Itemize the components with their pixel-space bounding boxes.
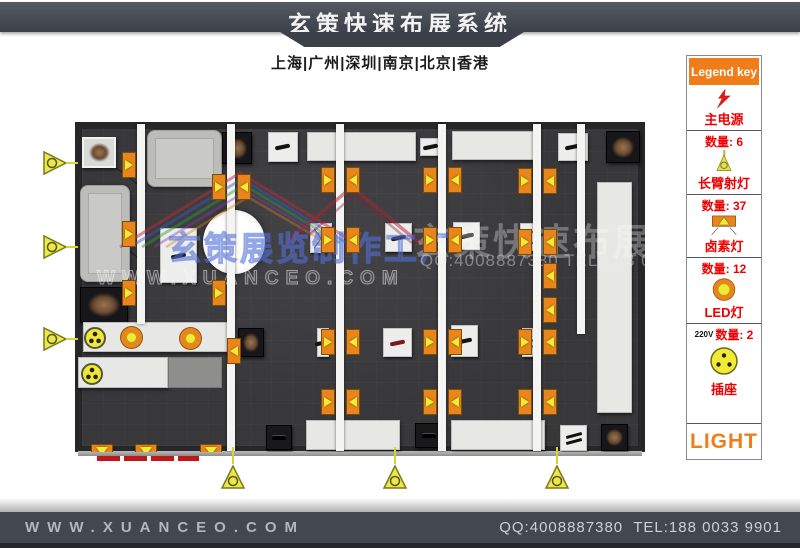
legend-title: Legend key — [689, 58, 759, 85]
spotlight-triangle-icon — [42, 234, 68, 260]
socket-icon — [709, 346, 739, 376]
partition-strip — [533, 124, 541, 451]
socket-marker — [81, 363, 103, 385]
halogen-lamp-marker — [237, 174, 251, 200]
lamp-triangle-icon — [426, 175, 434, 185]
spotlight-lead-line — [66, 246, 78, 248]
halogen-lamp-marker — [200, 444, 222, 452]
lamp-triangle-icon — [125, 229, 133, 239]
legend-item-halogen: 数量: 37 卤素灯 — [687, 195, 761, 258]
legend-panel: Legend key 主电源 数量: 6 长臂射灯 数量: 37 — [686, 55, 762, 460]
lamp-triangle-icon — [546, 176, 554, 186]
halogen-lamp-marker — [321, 227, 335, 253]
halogen-lamp-marker — [346, 227, 360, 253]
lamp-triangle-icon — [349, 337, 357, 347]
lamp-triangle-icon — [324, 397, 332, 407]
legend-item-label: 主电源 — [704, 109, 743, 128]
halogen-lamp-marker — [122, 221, 136, 247]
halogen-lamp-marker — [543, 263, 557, 289]
long-arm-spotlight-marker — [42, 234, 68, 260]
legend-item-qty: 数量: 6 — [705, 133, 743, 150]
lightning-icon — [712, 89, 736, 109]
furniture-ped — [268, 132, 298, 162]
lamp-triangle-icon — [125, 160, 133, 170]
spotlight-icon — [709, 150, 739, 173]
spotlight-triangle-icon — [382, 464, 408, 490]
lamp-triangle-icon — [546, 397, 554, 407]
halogen-lamp-marker — [423, 329, 437, 355]
halogen-lamp-marker — [543, 297, 557, 323]
lamp-triangle-icon — [240, 182, 248, 192]
furniture-artd — [238, 328, 264, 357]
lamp-triangle-icon — [451, 235, 459, 245]
led-lamp-marker — [180, 328, 201, 349]
halogen-lamp-marker — [448, 389, 462, 415]
halogen-lamp-marker — [227, 338, 241, 364]
furniture-block — [168, 357, 222, 388]
halogen-lamp-marker — [448, 167, 462, 193]
lamp-triangle-icon — [349, 397, 357, 407]
legend-item-label: 卤素灯 — [704, 236, 743, 255]
halogen-lamp-marker — [321, 389, 335, 415]
lamp-triangle-icon — [324, 235, 332, 245]
halogen-lamp-marker — [122, 152, 136, 178]
page: 玄策快速布展系统 上海|广州|深圳|南京|北京|香港 玄策展览制作工厂 WWW.… — [0, 0, 800, 548]
legend-light-label: LIGHT — [687, 424, 761, 460]
lamp-triangle-icon — [521, 337, 529, 347]
halogen-lamp-marker — [423, 389, 437, 415]
furniture-artd — [601, 424, 628, 451]
led-icon — [709, 277, 739, 302]
halogen-lamp-marker — [543, 389, 557, 415]
lamp-triangle-icon — [215, 182, 223, 192]
halogen-lamp-marker — [346, 389, 360, 415]
footer-bottom-strip — [0, 543, 800, 548]
legend-item-socket: 220V 数量: 2 插座 — [687, 324, 761, 424]
halogen-lamp-marker — [543, 168, 557, 194]
halogen-lamp-marker — [518, 389, 532, 415]
red-strip — [97, 456, 120, 461]
lamp-triangle-icon — [324, 175, 332, 185]
lamp-triangle-icon — [140, 447, 152, 453]
footer-website: WWW.XUANCEO.COM — [25, 519, 305, 536]
lamp-triangle-icon — [426, 397, 434, 407]
halogen-lamp-marker — [346, 329, 360, 355]
footer-gradient — [0, 498, 800, 512]
lamp-triangle-icon — [324, 337, 332, 347]
legend-item-label: 插座 — [711, 379, 737, 398]
lamp-triangle-icon — [125, 288, 133, 298]
lamp-triangle-icon — [521, 237, 529, 247]
halogen-lamp-marker — [346, 167, 360, 193]
lamp-triangle-icon — [451, 337, 459, 347]
halogen-lamp-marker — [135, 444, 157, 452]
halogen-lamp-marker — [423, 167, 437, 193]
partition-strip — [577, 124, 585, 334]
furniture-pedd — [266, 425, 292, 450]
furniture-artd — [606, 131, 640, 163]
spotlight-lead-line — [66, 338, 78, 340]
furniture-counter — [306, 420, 400, 450]
furniture-counter — [597, 182, 632, 413]
city-list: 上海|广州|深圳|南京|北京|香港 — [0, 52, 760, 73]
lamp-triangle-icon — [546, 337, 554, 347]
lamp-triangle-icon — [215, 288, 223, 298]
halogen-lamp-marker — [212, 280, 226, 306]
legend-item-voltage: 220V — [695, 330, 714, 339]
lamp-triangle-icon — [521, 397, 529, 407]
spotlight-triangle-icon — [42, 326, 68, 352]
prism-watermark-graphic — [100, 165, 445, 255]
lamp-triangle-icon — [451, 397, 459, 407]
long-arm-spotlight-marker — [544, 464, 570, 490]
lamp-triangle-icon — [205, 447, 217, 453]
legend-item-qty: 数量: 12 — [702, 260, 747, 277]
legend-item-led: 数量: 12 LED灯 — [687, 258, 761, 324]
spotlight-triangle-icon — [544, 464, 570, 490]
halogen-lamp-marker — [321, 329, 335, 355]
long-arm-spotlight-marker — [382, 464, 408, 490]
led-lamp-marker — [121, 327, 142, 348]
halogen-lamp-marker — [518, 168, 532, 194]
red-strip — [124, 456, 147, 461]
lamp-triangle-icon — [451, 175, 459, 185]
halogen-lamp-marker — [321, 167, 335, 193]
spotlight-triangle-icon — [42, 150, 68, 176]
halogen-lamp-marker — [122, 280, 136, 306]
lamp-triangle-icon — [546, 237, 554, 247]
furniture-counter — [452, 131, 538, 160]
legend-item-main-power: 主电源 — [687, 87, 761, 131]
lamp-triangle-icon — [349, 175, 357, 185]
spotlight-lead-line — [394, 447, 396, 464]
furniture-pedr — [383, 328, 412, 357]
spotlight-lead-line — [66, 162, 78, 164]
app-header: 玄策快速布展系统 — [0, 2, 800, 32]
lamp-triangle-icon — [521, 176, 529, 186]
halogen-lamp-marker — [448, 227, 462, 253]
footer-bar: WWW.XUANCEO.COM QQ:4008887380 TEL:188 00… — [0, 512, 800, 543]
halogen-lamp-marker — [518, 329, 532, 355]
halogen-lamp-marker — [518, 229, 532, 255]
lamp-triangle-icon — [96, 447, 108, 453]
halogen-lamp-marker — [212, 174, 226, 200]
long-arm-spotlight-marker — [42, 150, 68, 176]
halogen-lamp-marker — [543, 229, 557, 255]
long-arm-spotlight-marker — [220, 464, 246, 490]
socket-marker — [84, 327, 106, 349]
halogen-lamp-marker — [448, 329, 462, 355]
furniture-artd — [80, 287, 128, 323]
lamp-triangle-icon — [546, 305, 554, 315]
long-arm-spotlight-marker — [42, 326, 68, 352]
red-strip — [151, 456, 174, 461]
legend-item-label: 长臂射灯 — [698, 173, 750, 192]
halogen-lamp-marker — [423, 227, 437, 253]
floor-plan: 玄策展览制作工厂 WWW.XUANCEO.COM 玄策快速布展系统 QQ:400… — [75, 122, 645, 452]
legend-item-label: LED灯 — [704, 302, 743, 321]
furniture-counter — [451, 420, 545, 450]
furniture-counter — [307, 132, 416, 161]
lamp-triangle-icon — [426, 337, 434, 347]
legend-item-qty: 数量: 37 — [702, 197, 747, 214]
lamp-triangle-icon — [426, 235, 434, 245]
furniture-artl — [82, 137, 116, 168]
spotlight-lead-line — [556, 447, 558, 464]
footer-contact: QQ:4008887380 TEL:188 0033 9901 — [499, 519, 782, 536]
lamp-triangle-icon — [546, 271, 554, 281]
lamp-triangle-icon — [230, 346, 238, 356]
spotlight-lead-line — [232, 447, 234, 464]
spotlight-triangle-icon — [220, 464, 246, 490]
halogen-lamp-marker — [543, 329, 557, 355]
lamp-triangle-icon — [349, 235, 357, 245]
furniture-pedl — [560, 425, 587, 451]
header-tab-shape — [280, 32, 524, 47]
halogen-lamp-marker — [91, 444, 113, 452]
red-strip — [178, 456, 199, 461]
halogen-icon — [701, 214, 747, 236]
legend-item-qty: 数量: 2 — [715, 326, 753, 343]
legend-item-long-arm-spotlight: 数量: 6 长臂射灯 — [687, 131, 761, 195]
